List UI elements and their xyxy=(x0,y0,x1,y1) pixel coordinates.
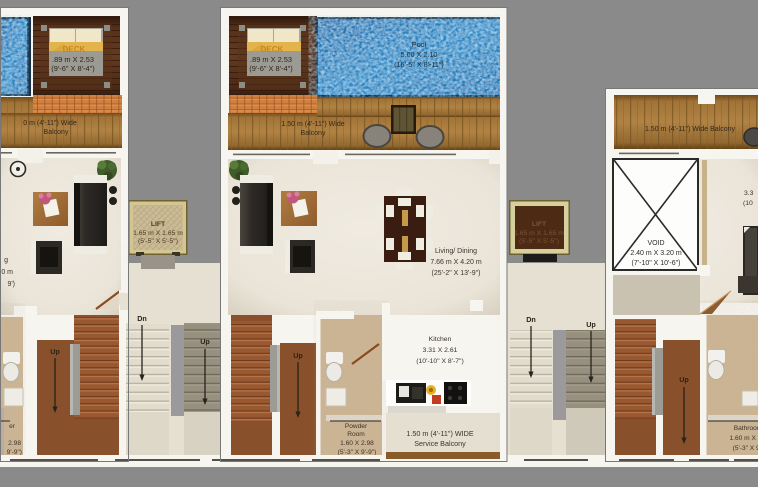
svg-text:Dn: Dn xyxy=(526,315,536,324)
svg-text:Bathroom: Bathroom xyxy=(734,425,758,432)
svg-text:Powder: Powder xyxy=(345,423,368,430)
svg-text:Balcony: Balcony xyxy=(301,130,326,137)
svg-text:Up: Up xyxy=(679,375,689,384)
svg-text:Pool: Pool xyxy=(412,40,427,49)
svg-text:Kitchen: Kitchen xyxy=(429,336,452,343)
svg-text:(25'-2" X 13'-9"): (25'-2" X 13'-9") xyxy=(432,270,481,277)
svg-text:(7'-10" X 10'-6"): (7'-10" X 10'-6") xyxy=(632,260,681,267)
svg-text:Dn: Dn xyxy=(137,314,147,323)
svg-text:1.60 X 2.98: 1.60 X 2.98 xyxy=(340,440,374,447)
svg-text:1.50 m (4'-11") WIDE: 1.50 m (4'-11") WIDE xyxy=(406,429,474,438)
svg-text:Up: Up xyxy=(293,351,303,360)
svg-text:1.65 m X 1.65 m: 1.65 m X 1.65 m xyxy=(514,230,564,237)
svg-text:9'): 9') xyxy=(7,281,15,288)
svg-text:Living/ Dining: Living/ Dining xyxy=(435,248,477,255)
svg-text:er: er xyxy=(9,423,16,430)
svg-text:(9'-6" X 8'-4"): (9'-6" X 8'-4") xyxy=(51,64,94,73)
svg-text:Up: Up xyxy=(50,347,60,356)
svg-text:Balcony: Balcony xyxy=(44,129,69,136)
svg-text:(5'-3" X 9'-9"): (5'-3" X 9'-9") xyxy=(733,445,758,452)
svg-text:DECK: DECK xyxy=(261,45,284,54)
svg-text:2.98: 2.98 xyxy=(8,440,21,447)
svg-text:0 m (4'-11") Wide: 0 m (4'-11") Wide xyxy=(23,120,77,127)
svg-text:(9'-6" X 8'-4"): (9'-6" X 8'-4") xyxy=(249,64,292,73)
svg-text:1.50 m (4'-11") Wide: 1.50 m (4'-11") Wide xyxy=(281,121,344,128)
svg-text:9'-9"): 9'-9") xyxy=(7,449,22,456)
svg-text:Up: Up xyxy=(200,337,210,346)
svg-text:(16'-5" X 8'-11"): (16'-5" X 8'-11") xyxy=(394,60,444,69)
svg-text:Service Balcony: Service Balcony xyxy=(414,439,466,448)
svg-text:g: g xyxy=(4,257,8,264)
svg-text:1.60 m X 2.98: 1.60 m X 2.98 xyxy=(729,435,758,442)
svg-text:LIFT: LIFT xyxy=(151,221,166,228)
svg-text:Up: Up xyxy=(586,320,596,329)
svg-text:.89 m X 2.53: .89 m X 2.53 xyxy=(52,55,94,64)
svg-text:1.50 m (4'-11") Wide Balcony: 1.50 m (4'-11") Wide Balcony xyxy=(645,126,736,133)
svg-text:3.3: 3.3 xyxy=(744,190,754,197)
svg-text:(10: (10 xyxy=(743,200,753,207)
svg-text:3.31 X 2.61: 3.31 X 2.61 xyxy=(423,347,458,354)
svg-text:1.65 m X 1.65 m: 1.65 m X 1.65 m xyxy=(133,230,183,237)
svg-text:7.66 m X 4.20 m: 7.66 m X 4.20 m xyxy=(430,259,482,266)
svg-text:0 m: 0 m xyxy=(1,269,13,276)
svg-text:DECK: DECK xyxy=(63,45,86,54)
svg-text:VOID: VOID xyxy=(647,240,664,247)
svg-text:(5'-5" X 5'-5"): (5'-5" X 5'-5") xyxy=(138,238,178,245)
svg-text:2.40 m X 3.20 m: 2.40 m X 3.20 m xyxy=(630,250,682,257)
svg-text:(10'-10" X 8'-7"): (10'-10" X 8'-7") xyxy=(416,358,463,365)
svg-text:Room: Room xyxy=(347,431,365,438)
svg-text:(5'-5" X 5'-5"): (5'-5" X 5'-5") xyxy=(519,238,559,245)
svg-text:.89 m X 2.53: .89 m X 2.53 xyxy=(250,55,292,64)
svg-text:LIFT: LIFT xyxy=(532,221,547,228)
svg-text:5.00 X 2.10: 5.00 X 2.10 xyxy=(401,50,438,59)
svg-text:(5'-3" X 9'-9"): (5'-3" X 9'-9") xyxy=(338,449,377,456)
